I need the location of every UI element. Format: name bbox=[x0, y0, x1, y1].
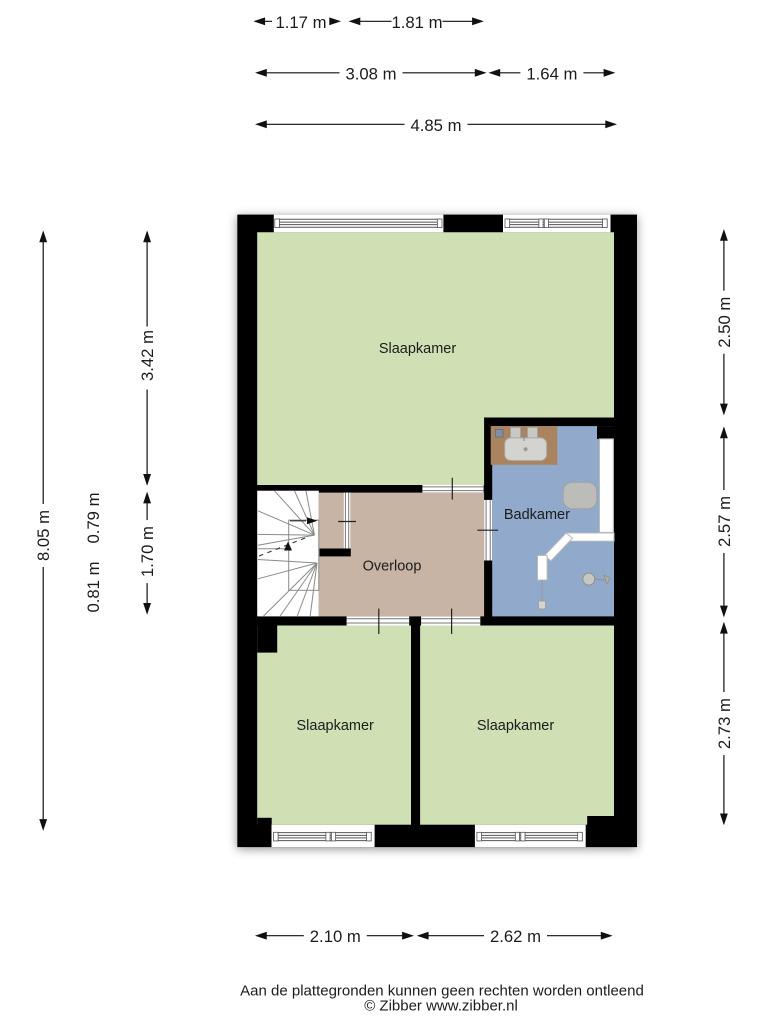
svg-text:Overloop: Overloop bbox=[363, 559, 422, 575]
svg-text:2.50 m: 2.50 m bbox=[715, 297, 734, 348]
svg-text:8.05 m: 8.05 m bbox=[34, 510, 53, 561]
svg-text:Badkamer: Badkamer bbox=[504, 507, 570, 523]
svg-text:4.85 m: 4.85 m bbox=[410, 116, 461, 135]
svg-text:1.64 m: 1.64 m bbox=[526, 64, 577, 83]
svg-text:0.79 m: 0.79 m bbox=[84, 492, 103, 543]
svg-text:2.62 m: 2.62 m bbox=[490, 927, 541, 946]
svg-text:1.81 m: 1.81 m bbox=[391, 13, 442, 32]
svg-text:1.70 m: 1.70 m bbox=[138, 526, 157, 577]
svg-text:Slaapkamer: Slaapkamer bbox=[297, 718, 375, 734]
svg-text:1.17 m: 1.17 m bbox=[275, 13, 326, 32]
svg-text:2.57 m: 2.57 m bbox=[715, 496, 734, 547]
svg-text:Slaapkamer: Slaapkamer bbox=[477, 718, 555, 734]
svg-text:© Zibber www.zibber.nl: © Zibber www.zibber.nl bbox=[364, 998, 518, 1015]
svg-text:3.08 m: 3.08 m bbox=[345, 64, 396, 83]
svg-text:Slaapkamer: Slaapkamer bbox=[379, 341, 457, 357]
svg-text:3.42 m: 3.42 m bbox=[138, 330, 157, 381]
svg-text:2.10 m: 2.10 m bbox=[310, 927, 361, 946]
svg-text:2.73 m: 2.73 m bbox=[715, 698, 734, 749]
svg-text:0.81 m: 0.81 m bbox=[84, 561, 103, 612]
